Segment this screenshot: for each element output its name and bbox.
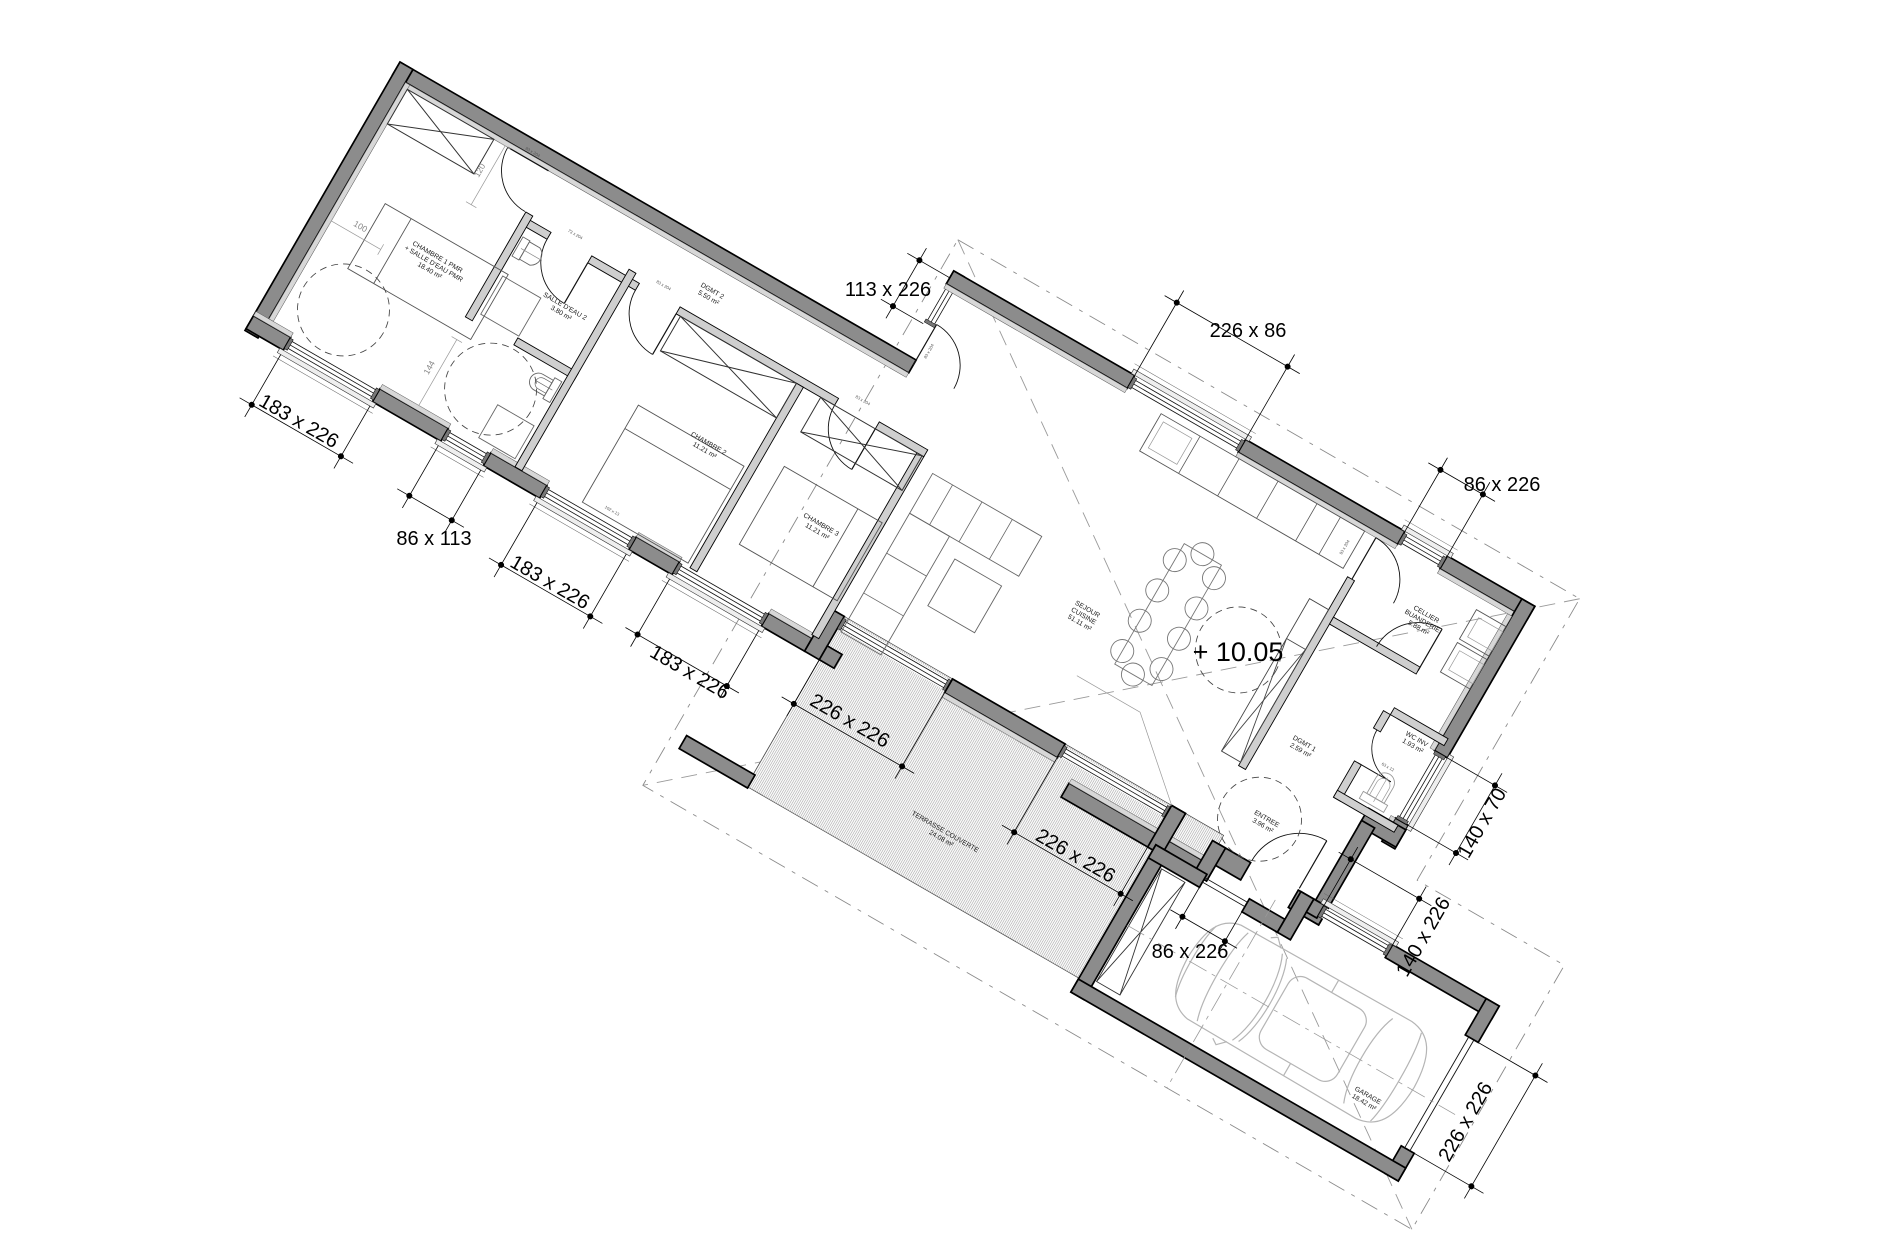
svg-text:+ 10.05: + 10.05	[1193, 637, 1284, 667]
svg-text:86 x 113: 86 x 113	[396, 528, 471, 550]
svg-text:113 x 226: 113 x 226	[845, 279, 931, 301]
svg-text:86 x 226: 86 x 226	[1464, 474, 1541, 496]
svg-text:226 x 86: 226 x 86	[1210, 320, 1287, 342]
svg-text:86 x 226: 86 x 226	[1152, 941, 1229, 963]
